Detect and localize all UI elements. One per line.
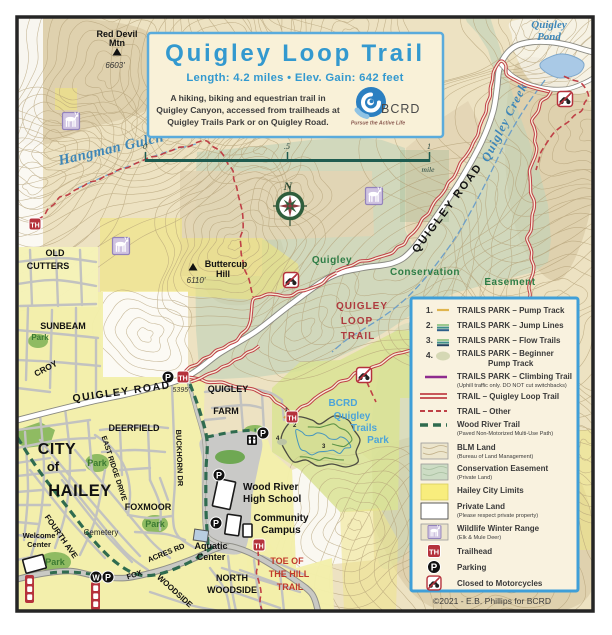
- svg-text:QUIGLEY: QUIGLEY: [336, 301, 388, 312]
- svg-text:CITY: CITY: [38, 441, 76, 458]
- svg-text:Cemetery: Cemetery: [84, 528, 119, 537]
- svg-text:QUIGLEY: QUIGLEY: [208, 384, 249, 394]
- svg-text:TRAIL: TRAIL: [341, 331, 375, 342]
- svg-text:Center: Center: [27, 540, 51, 549]
- svg-text:Park: Park: [45, 557, 66, 567]
- svg-text:BCRD: BCRD: [381, 102, 420, 116]
- svg-text:Quigley: Quigley: [531, 19, 567, 31]
- svg-text:(Uphill traffic only. DO NOT c: (Uphill traffic only. DO NOT cut switchb…: [457, 383, 567, 389]
- svg-text:1: 1: [427, 142, 431, 151]
- svg-text:P: P: [105, 572, 111, 582]
- svg-text:FARM: FARM: [213, 406, 239, 416]
- svg-text:Center: Center: [197, 552, 226, 562]
- svg-text:THE HILL: THE HILL: [269, 569, 310, 579]
- svg-text:TH: TH: [30, 222, 39, 229]
- svg-text:TRAILS PARK – Jump Lines: TRAILS PARK – Jump Lines: [457, 321, 564, 330]
- svg-text:Wildlife Winter Range: Wildlife Winter Range: [457, 524, 540, 533]
- svg-text:Pursue the Active Life: Pursue the Active Life: [351, 121, 405, 127]
- svg-text:TH: TH: [254, 543, 263, 550]
- svg-text:0: 0: [143, 142, 147, 151]
- svg-text:High School: High School: [243, 494, 302, 505]
- svg-text:TH: TH: [287, 415, 296, 422]
- svg-text:(Elk & Mule Deer): (Elk & Mule Deer): [457, 535, 501, 541]
- svg-text:6603': 6603': [105, 61, 125, 70]
- svg-text:TRAIL: TRAIL: [277, 582, 304, 592]
- svg-text:Hill: Hill: [216, 269, 230, 279]
- svg-text:1.: 1.: [426, 305, 433, 315]
- svg-text:Pond: Pond: [537, 31, 561, 43]
- svg-text:Wood River: Wood River: [243, 482, 298, 493]
- svg-text:DEERFIELD: DEERFIELD: [108, 423, 160, 433]
- svg-text:TRAILS PARK – Pump Track: TRAILS PARK – Pump Track: [457, 306, 565, 315]
- svg-text:(Please respect private proper: (Please respect private property): [457, 513, 538, 519]
- svg-text:TRAIL – Other: TRAIL – Other: [457, 407, 511, 416]
- svg-text:Quigley Loop Trail: Quigley Loop Trail: [165, 40, 425, 67]
- svg-text:TRAILS PARK – Climbing Trail: TRAILS PARK – Climbing Trail: [457, 372, 572, 381]
- svg-text:Pump Track: Pump Track: [488, 359, 534, 368]
- svg-text:Welcome: Welcome: [23, 531, 56, 540]
- svg-text:TRAILS PARK – Flow Trails: TRAILS PARK – Flow Trails: [457, 336, 561, 345]
- svg-text:TOE OF: TOE OF: [270, 556, 304, 566]
- svg-text:Wood River Trail: Wood River Trail: [457, 420, 520, 429]
- svg-text:Quigley Canyon, accessed from: Quigley Canyon, accessed from trailheads…: [156, 105, 340, 115]
- svg-text:Quigley Trails Park or on Quig: Quigley Trails Park or on Quigley Road.: [167, 117, 328, 127]
- svg-text:Park: Park: [145, 519, 166, 529]
- svg-text:4.: 4.: [426, 350, 433, 360]
- svg-text:Hailey City Limits: Hailey City Limits: [457, 486, 524, 495]
- svg-text:NORTH: NORTH: [216, 573, 248, 583]
- svg-text:W: W: [92, 573, 100, 582]
- svg-text:Park: Park: [31, 333, 49, 342]
- svg-text:Easement: Easement: [484, 277, 535, 288]
- svg-text:Buttercup: Buttercup: [205, 259, 248, 269]
- svg-text:TRAIL – Quigley Loop Trail: TRAIL – Quigley Loop Trail: [457, 392, 559, 401]
- svg-text:WOODSIDE: WOODSIDE: [207, 585, 257, 595]
- svg-text:(Paved Non-Motorized Multi-Use: (Paved Non-Motorized Multi-Use Path): [457, 431, 553, 437]
- svg-text:Mtn: Mtn: [109, 38, 125, 48]
- svg-text:Park: Park: [87, 458, 108, 468]
- svg-text:©2021 - E.B. Phillips for BCRD: ©2021 - E.B. Phillips for BCRD: [433, 596, 551, 606]
- svg-text:P: P: [431, 563, 438, 574]
- svg-text:Closed to Motorcycles: Closed to Motorcycles: [457, 579, 543, 588]
- svg-text:(Bureau of Land Management): (Bureau of Land Management): [457, 454, 533, 460]
- svg-text:Campus: Campus: [261, 525, 301, 536]
- svg-text:N: N: [283, 179, 294, 193]
- svg-text:Parking: Parking: [457, 563, 486, 572]
- svg-text:Community: Community: [254, 513, 309, 524]
- svg-text:of: of: [47, 459, 60, 474]
- svg-text:Trails: Trails: [351, 423, 378, 434]
- svg-text:Trailhead: Trailhead: [457, 547, 492, 556]
- svg-text:(Private Land): (Private Land): [457, 475, 492, 481]
- svg-text:P: P: [216, 470, 222, 480]
- svg-text:A hiking, biking and equestria: A hiking, biking and equestrian trail in: [170, 93, 325, 103]
- svg-text:LOOP: LOOP: [341, 316, 373, 327]
- svg-text:2.: 2.: [426, 320, 433, 330]
- svg-text:mile: mile: [422, 165, 436, 174]
- svg-text:CUTTERS: CUTTERS: [27, 261, 70, 271]
- svg-text:BLM Land: BLM Land: [457, 443, 496, 452]
- svg-text:6110': 6110': [187, 276, 206, 285]
- svg-text:P: P: [213, 518, 219, 528]
- svg-text:3.: 3.: [426, 335, 433, 345]
- svg-text:BCRD: BCRD: [329, 398, 358, 409]
- svg-text:TH: TH: [178, 375, 187, 382]
- svg-text:Aquatic: Aquatic: [194, 541, 227, 551]
- svg-text:FOXMOOR: FOXMOOR: [125, 502, 172, 512]
- svg-text:Length: 4.2 miles • Elev. Gain: Length: 4.2 miles • Elev. Gain: 642 feet: [186, 72, 403, 84]
- svg-text:TH: TH: [429, 548, 439, 557]
- svg-text:P: P: [260, 428, 266, 438]
- svg-text:Conservation Easement: Conservation Easement: [457, 464, 548, 473]
- svg-text:HAILEY: HAILEY: [48, 482, 112, 500]
- svg-text:OLD: OLD: [46, 248, 65, 258]
- svg-text:Conservation: Conservation: [390, 267, 460, 278]
- svg-text:Quigley: Quigley: [334, 411, 371, 422]
- svg-text:5395': 5395': [173, 387, 191, 394]
- svg-text:TRAILS PARK – Beginner: TRAILS PARK – Beginner: [457, 349, 554, 358]
- svg-text:Quigley: Quigley: [312, 255, 352, 266]
- svg-text:Park: Park: [367, 435, 389, 446]
- svg-text:Private Land: Private Land: [457, 502, 505, 511]
- svg-text:SUNBEAM: SUNBEAM: [40, 321, 86, 331]
- svg-text:.5: .5: [284, 142, 290, 151]
